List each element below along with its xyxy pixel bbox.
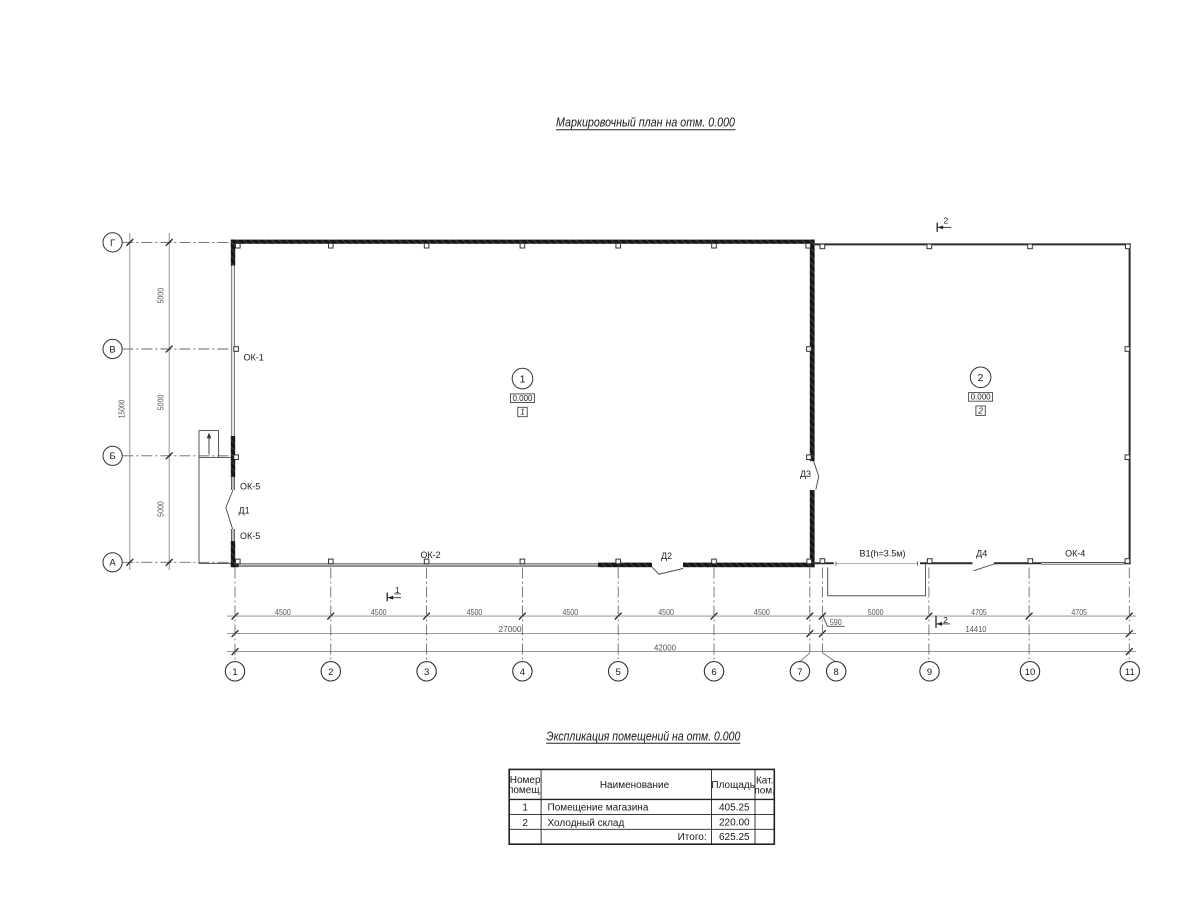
- svg-text:Д2: Д2: [661, 551, 672, 561]
- svg-text:6: 6: [711, 667, 716, 678]
- svg-text:27000: 27000: [499, 624, 522, 634]
- svg-text:Д1: Д1: [239, 505, 250, 515]
- svg-text:2: 2: [944, 215, 949, 225]
- svg-text:ОК-1: ОК-1: [244, 353, 264, 363]
- svg-text:590: 590: [830, 617, 842, 627]
- svg-text:2: 2: [977, 406, 983, 415]
- svg-text:Площадь: Площадь: [711, 780, 755, 791]
- svg-text:ОК-5: ОК-5: [240, 531, 260, 541]
- svg-text:В: В: [109, 344, 115, 355]
- svg-text:Маркировочный план на отм. 0.: Маркировочный план на отм. 0.000: [556, 115, 736, 130]
- svg-text:4500: 4500: [562, 607, 578, 617]
- svg-text:4500: 4500: [371, 607, 387, 617]
- svg-text:42000: 42000: [654, 643, 676, 653]
- svg-text:5: 5: [616, 667, 621, 678]
- svg-text:4500: 4500: [754, 607, 770, 617]
- svg-text:1: 1: [522, 803, 528, 814]
- svg-text:ОК-5: ОК-5: [240, 481, 260, 491]
- svg-text:1: 1: [395, 585, 400, 595]
- svg-text:9: 9: [927, 667, 932, 678]
- svg-text:ОК-4: ОК-4: [1065, 549, 1085, 559]
- svg-text:4500: 4500: [467, 607, 483, 617]
- svg-text:2: 2: [522, 818, 528, 829]
- svg-text:Экспликация помещений на отм.: Экспликация помещений на отм. 0.000: [546, 729, 741, 744]
- svg-text:А: А: [109, 558, 116, 569]
- svg-text:4500: 4500: [658, 607, 674, 617]
- svg-text:4500: 4500: [275, 607, 291, 617]
- svg-text:1: 1: [520, 373, 526, 385]
- svg-text:0.000: 0.000: [971, 393, 992, 402]
- svg-text:В1(h=3.5м): В1(h=3.5м): [860, 548, 906, 558]
- svg-text:2: 2: [978, 372, 984, 384]
- svg-text:1: 1: [232, 667, 237, 678]
- svg-text:7: 7: [797, 667, 802, 678]
- svg-text:Наименование: Наименование: [600, 780, 670, 791]
- svg-text:5000: 5000: [155, 501, 165, 517]
- svg-text:ОК-2: ОК-2: [420, 550, 440, 560]
- svg-text:3: 3: [424, 667, 429, 678]
- svg-text:Д4: Д4: [976, 549, 987, 559]
- svg-text:помещ.: помещ.: [508, 785, 542, 796]
- svg-text:Д3: Д3: [800, 469, 811, 479]
- svg-text:0.000: 0.000: [512, 394, 533, 403]
- svg-text:8: 8: [834, 667, 839, 678]
- svg-text:Б: Б: [109, 451, 115, 462]
- svg-text:220.00: 220.00: [719, 818, 750, 829]
- svg-text:4: 4: [520, 667, 525, 678]
- svg-text:Г: Г: [110, 238, 115, 249]
- svg-text:11: 11: [1125, 667, 1135, 678]
- svg-text:10: 10: [1025, 667, 1036, 678]
- svg-text:1: 1: [520, 408, 524, 417]
- svg-text:5000: 5000: [155, 394, 165, 410]
- svg-text:4705: 4705: [1071, 607, 1087, 617]
- svg-text:15000: 15000: [117, 400, 127, 419]
- svg-text:2: 2: [328, 667, 333, 678]
- svg-text:Холодный склад: Холодный склад: [548, 818, 625, 829]
- svg-text:2: 2: [943, 615, 948, 625]
- svg-text:405.25: 405.25: [719, 803, 750, 814]
- svg-text:5000: 5000: [155, 288, 165, 304]
- svg-text:5000: 5000: [868, 607, 884, 617]
- svg-text:Помещение магазина: Помещение магазина: [548, 803, 649, 814]
- svg-text:625.25: 625.25: [719, 832, 750, 843]
- svg-text:14410: 14410: [966, 624, 987, 634]
- svg-text:4705: 4705: [971, 607, 987, 617]
- svg-text:Итого:: Итого:: [678, 832, 707, 843]
- svg-text:пом.: пом.: [754, 786, 775, 797]
